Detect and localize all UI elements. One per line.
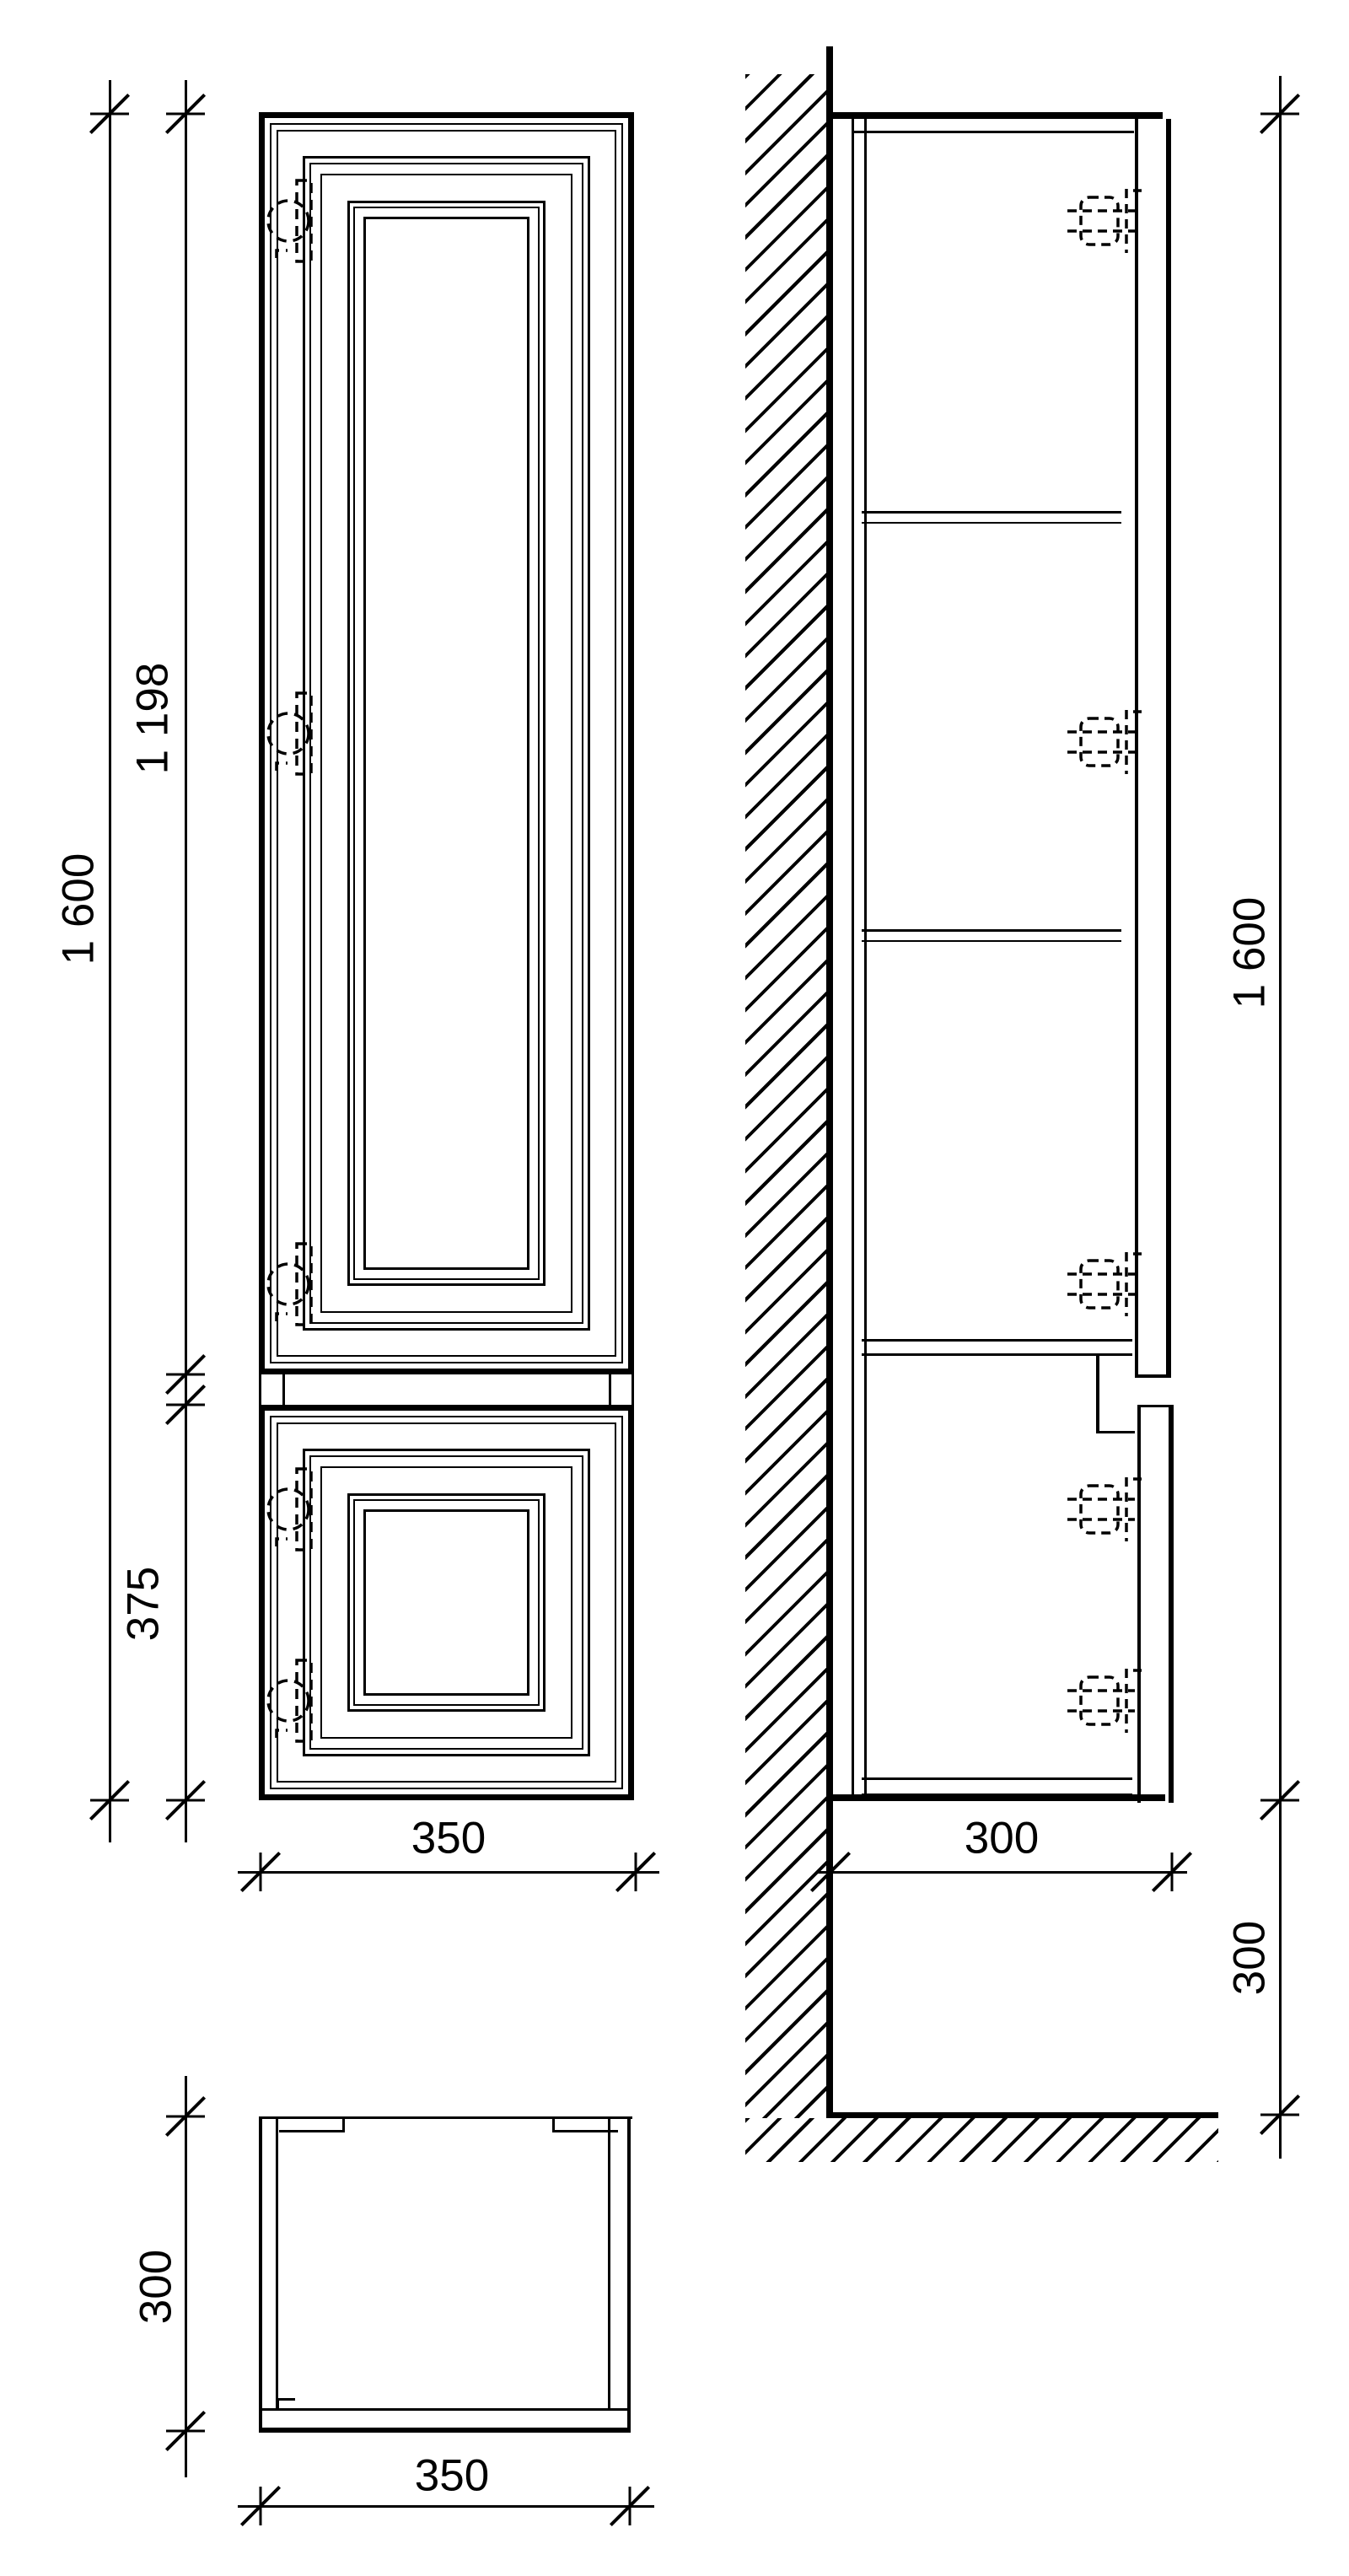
mount-rail [279, 2130, 345, 2132]
dim-label-lower-door-height: 375 [121, 1567, 166, 1641]
plan-door-back [259, 2408, 631, 2411]
carcass-front-edge [1096, 1356, 1099, 1433]
dim-label-plan-width: 350 [415, 2454, 489, 2498]
shelf [862, 511, 1121, 524]
hinge-icon [1061, 1250, 1148, 1318]
side-lower-door [1137, 1405, 1174, 1803]
dim-line [109, 80, 111, 1842]
hinge-plate [277, 2398, 295, 2401]
dim-line [185, 2076, 187, 2477]
cabinet-top [833, 112, 1163, 119]
dim-line [1279, 76, 1282, 2159]
dim-label-upper-door-height: 1 198 [131, 663, 175, 775]
cabinet-bottom [833, 1794, 1165, 1801]
hinge-icon [251, 681, 325, 786]
dim-line [238, 1871, 659, 1874]
hinge-icon [251, 1457, 325, 1562]
mount-rail [552, 2130, 618, 2132]
hinge-icon [1061, 1476, 1148, 1543]
hinge-icon [1061, 187, 1148, 255]
technical-drawing: 1 600 1 198 375 350 1 600 300 300 300 35… [0, 0, 1349, 2576]
wall-hatch [745, 74, 826, 2118]
fixed-divider [862, 1339, 1132, 1356]
hinge-icon [251, 1648, 325, 1753]
floor-hatch [745, 2118, 1218, 2162]
plan-left-edge [259, 2116, 262, 2433]
back-panel [852, 119, 867, 1800]
dim-label-front-total-height: 1 600 [56, 853, 101, 965]
dim-line [185, 80, 187, 1842]
floor-line [830, 2112, 1218, 2118]
shelf [862, 929, 1121, 942]
dim-label-floor-offset: 300 [1228, 1921, 1272, 1995]
dim-label-side-total-height: 1 600 [1228, 897, 1272, 1009]
dim-label-side-depth: 300 [965, 1816, 1039, 1861]
hinge-icon [1061, 708, 1148, 776]
dim-line [238, 2505, 654, 2508]
hinge-icon [251, 1232, 325, 1336]
plan-right-edge [627, 2116, 631, 2433]
dim-label-front-width: 350 [411, 1816, 486, 1861]
dim-line [816, 1871, 1187, 1874]
plan-door-front [259, 2428, 631, 2433]
hinge-icon [1061, 1667, 1148, 1734]
bottom-panel [862, 1777, 1132, 1796]
plan-back-edge [259, 2116, 632, 2119]
wall-line [826, 46, 833, 2118]
hinge-icon [251, 169, 325, 273]
dim-label-plan-depth: 300 [134, 2250, 179, 2324]
